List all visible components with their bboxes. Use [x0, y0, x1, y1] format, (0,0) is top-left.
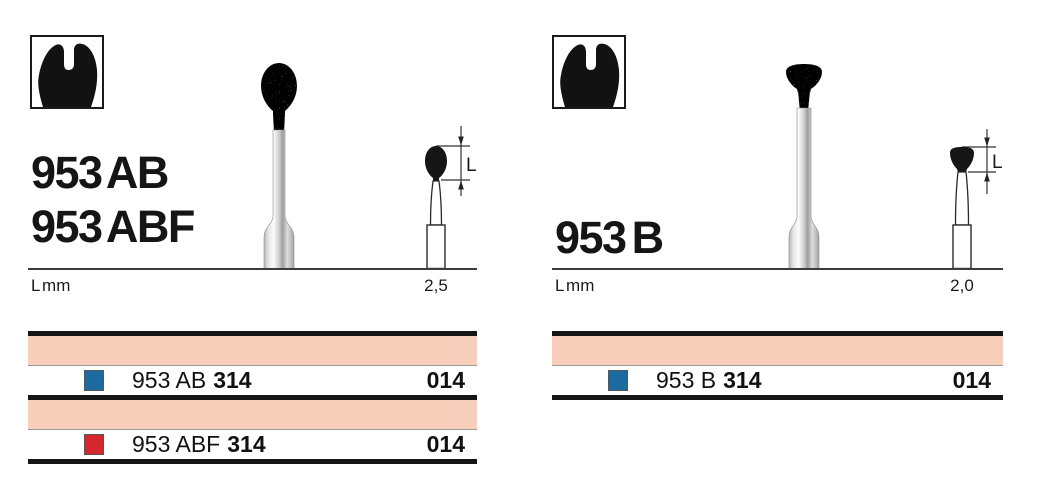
dim-arrow-down [984, 138, 990, 147]
tooth-shape [38, 44, 97, 107]
length-value: 2,5 [419, 276, 453, 296]
diagram-shank [427, 225, 445, 269]
diagram-head [425, 146, 447, 181]
tooth-profile-icon [552, 35, 626, 109]
head-size-number: 014 [427, 367, 465, 394]
table-band [28, 400, 477, 429]
product-titles: 953 B [555, 211, 663, 265]
dim-arrow-up [458, 181, 464, 190]
head-size-number: 014 [953, 367, 991, 394]
bur-head [261, 63, 297, 116]
diagram-neck [431, 181, 442, 225]
iso-shank-number: 314 [227, 431, 265, 458]
dimension-letter: L [992, 152, 1003, 173]
head-size-number: 014 [427, 431, 465, 458]
grit-swatch-red [84, 434, 104, 455]
table-band [28, 336, 477, 365]
product-code: 953 AB [132, 367, 206, 394]
table-rule-heavy [552, 395, 1003, 400]
tooth-silhouette [554, 37, 624, 107]
dim-arrow-up [984, 173, 990, 182]
axis-label: L mm [555, 276, 595, 296]
baseline-rule [552, 268, 1003, 270]
tooth-silhouette [32, 37, 102, 107]
grit-swatch-blue [608, 370, 628, 391]
bur-head [786, 64, 822, 93]
grit-swatch-blue [84, 370, 104, 391]
tooth-shape [560, 44, 619, 107]
product-title: 953 B [555, 211, 663, 265]
table-row: 953 AB 314 014 [28, 366, 477, 395]
axis-label: L mm [31, 276, 71, 296]
product-title: 953 AB [31, 146, 194, 200]
table-rule-heavy [28, 459, 477, 464]
dim-arrow-down [458, 137, 464, 146]
bur-photo [782, 62, 826, 270]
spec-table: 953 AB 314 014 953 ABF 314 014 [28, 331, 477, 464]
diagram-neck [956, 172, 969, 225]
baseline-rule [28, 268, 477, 270]
bur-dimension-diagram: L [400, 120, 485, 269]
bur-dimension-diagram: L [925, 120, 1005, 269]
bur-shaft [264, 130, 294, 270]
diagram-head [950, 147, 974, 172]
spec-table: 953 B 314 014 [552, 331, 1003, 400]
table-band [552, 336, 1003, 365]
iso-shank-number: 314 [213, 367, 251, 394]
product-title: 953 ABF [31, 200, 194, 254]
bur-photo [258, 60, 300, 270]
table-row: 953 ABF 314 014 [28, 430, 477, 459]
product-code: 953 ABF [132, 431, 220, 458]
tooth-profile-icon [30, 35, 104, 109]
bur-shaft [789, 108, 819, 270]
product-code: 953 B [656, 367, 716, 394]
product-titles: 953 AB 953 ABF [31, 146, 194, 254]
table-row: 953 B 314 014 [552, 366, 1003, 395]
catalog-page: 953 AB 953 ABF L L mm 2,5 [0, 0, 1043, 500]
diagram-shank [953, 225, 971, 269]
length-value: 2,0 [945, 276, 979, 296]
iso-shank-number: 314 [723, 367, 761, 394]
dimension-letter: L [466, 155, 477, 176]
